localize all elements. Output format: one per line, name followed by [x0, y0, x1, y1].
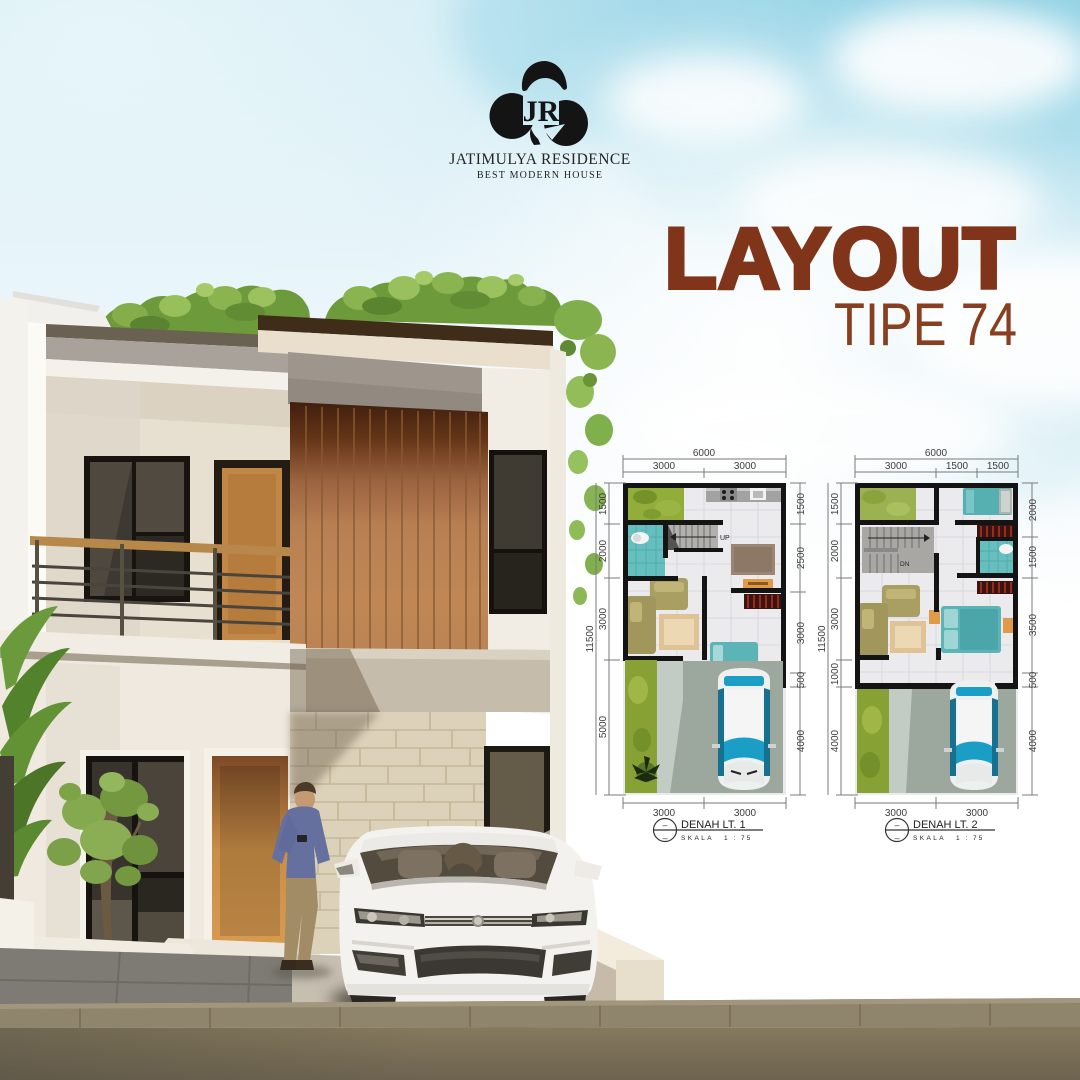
svg-text:3000: 3000 [734, 808, 757, 819]
svg-text:–: – [894, 833, 899, 843]
svg-text:2000: 2000 [1028, 498, 1039, 521]
svg-text:500: 500 [796, 671, 807, 688]
svg-text:TIPE 74: TIPE 74 [834, 291, 1017, 358]
svg-text:3000: 3000 [796, 621, 807, 644]
svg-text:1500: 1500 [987, 461, 1010, 472]
svg-text:3000: 3000 [966, 808, 989, 819]
svg-text:3000: 3000 [653, 461, 676, 472]
svg-text:3000: 3000 [885, 808, 908, 819]
svg-text:500: 500 [1028, 671, 1039, 688]
svg-text:6000: 6000 [693, 448, 716, 459]
svg-text:3000: 3000 [653, 808, 676, 819]
svg-text:JR: JR [523, 95, 560, 128]
svg-text:1000: 1000 [830, 662, 841, 685]
svg-text:4000: 4000 [830, 729, 841, 752]
svg-text:2000: 2000 [830, 539, 841, 562]
svg-text:DENAH LT. 1: DENAH LT. 1 [681, 819, 746, 831]
svg-text:1500: 1500 [946, 461, 969, 472]
svg-text:3000: 3000 [734, 461, 757, 472]
svg-text:–: – [894, 820, 899, 830]
svg-text:2000: 2000 [598, 539, 609, 562]
svg-text:3000: 3000 [885, 461, 908, 472]
svg-text:1500: 1500 [830, 492, 841, 515]
svg-text:11500: 11500 [585, 625, 596, 653]
svg-text:DN: DN [900, 561, 910, 568]
svg-text:–: – [662, 833, 667, 843]
svg-text:4000: 4000 [1028, 729, 1039, 752]
svg-text:1 : 75: 1 : 75 [956, 835, 984, 842]
svg-text:1 : 75: 1 : 75 [724, 835, 752, 842]
svg-text:3000: 3000 [830, 607, 841, 630]
svg-text:5000: 5000 [598, 715, 609, 738]
svg-text:3500: 3500 [1028, 613, 1039, 636]
svg-text:–: – [662, 820, 667, 830]
svg-text:11500: 11500 [817, 625, 828, 653]
svg-text:1500: 1500 [598, 492, 609, 515]
svg-text:2500: 2500 [796, 546, 807, 569]
svg-text:1500: 1500 [796, 492, 807, 515]
svg-text:BEST MODERN HOUSE: BEST MODERN HOUSE [477, 170, 603, 181]
svg-text:4000: 4000 [796, 729, 807, 752]
svg-text:DENAH LT. 2: DENAH LT. 2 [913, 819, 978, 831]
svg-text:3000: 3000 [598, 607, 609, 630]
svg-text:SKALA: SKALA [681, 835, 714, 842]
svg-text:6000: 6000 [925, 448, 948, 459]
svg-text:1500: 1500 [1028, 545, 1039, 568]
svg-text:SKALA: SKALA [913, 835, 946, 842]
svg-text:UP: UP [720, 535, 730, 542]
svg-text:JATIMULYA RESIDENCE: JATIMULYA RESIDENCE [449, 151, 630, 168]
